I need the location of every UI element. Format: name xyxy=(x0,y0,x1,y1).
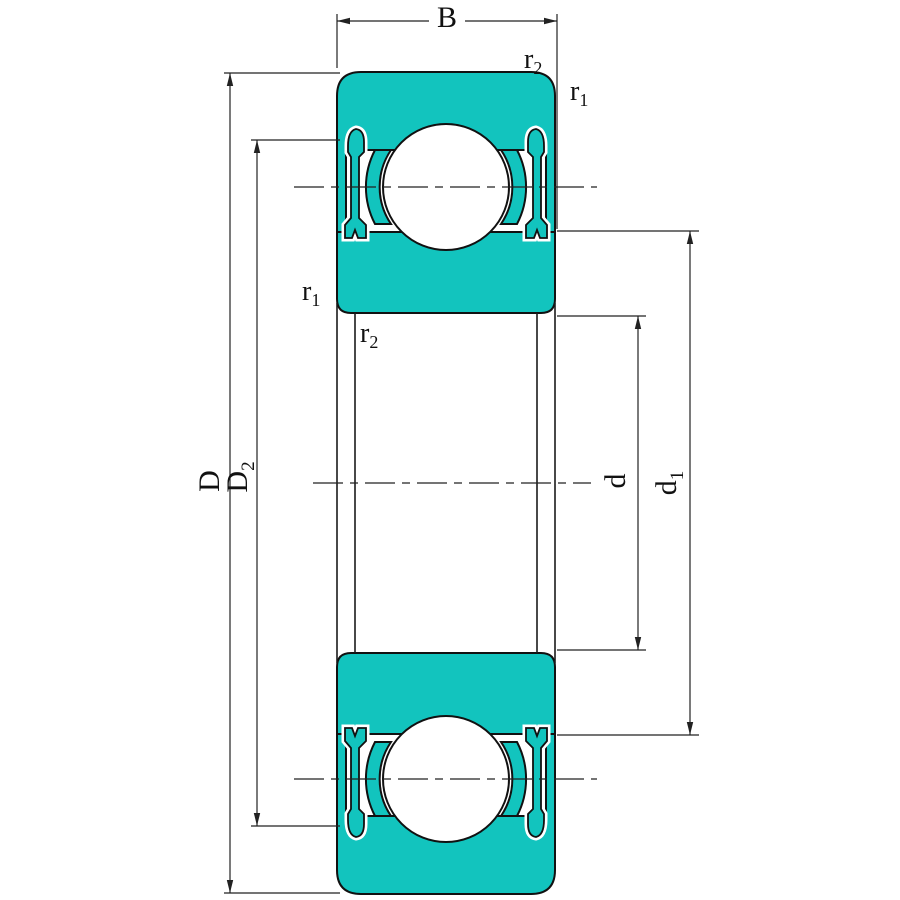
arrow-B-left xyxy=(337,18,350,24)
label-bore-diameter-d: d xyxy=(599,474,632,489)
bearing-drawing-stage: B D D2 d d1 r2 r1 r1 r2 xyxy=(0,0,900,900)
arrow-B-right xyxy=(544,18,557,24)
label-chamfer-r1-top: r1 xyxy=(570,76,588,110)
arrow-D-top xyxy=(227,73,233,86)
arrow-D-bottom xyxy=(227,880,233,893)
arrow-D2-bottom xyxy=(254,813,260,826)
arrow-D2-top xyxy=(254,140,260,153)
label-chamfer-r1-left: r1 xyxy=(302,276,320,310)
label-width-B: B xyxy=(437,1,457,34)
arrow-d-bottom xyxy=(635,637,641,650)
arrow-d1-bottom xyxy=(687,722,693,735)
label-recess-diameter-D2: D2 xyxy=(221,461,259,492)
label-shoulder-diameter-d1: d1 xyxy=(650,471,688,496)
arrow-d-top xyxy=(635,316,641,329)
bearing-section-bottom xyxy=(337,653,555,894)
bearing-section-top xyxy=(337,72,555,313)
bearing-technical-drawing: B D D2 d d1 r2 r1 r1 r2 xyxy=(0,0,900,900)
label-chamfer-r2-left: r2 xyxy=(360,318,378,352)
label-chamfer-r2-top: r2 xyxy=(524,44,542,78)
arrow-d1-top xyxy=(687,231,693,244)
